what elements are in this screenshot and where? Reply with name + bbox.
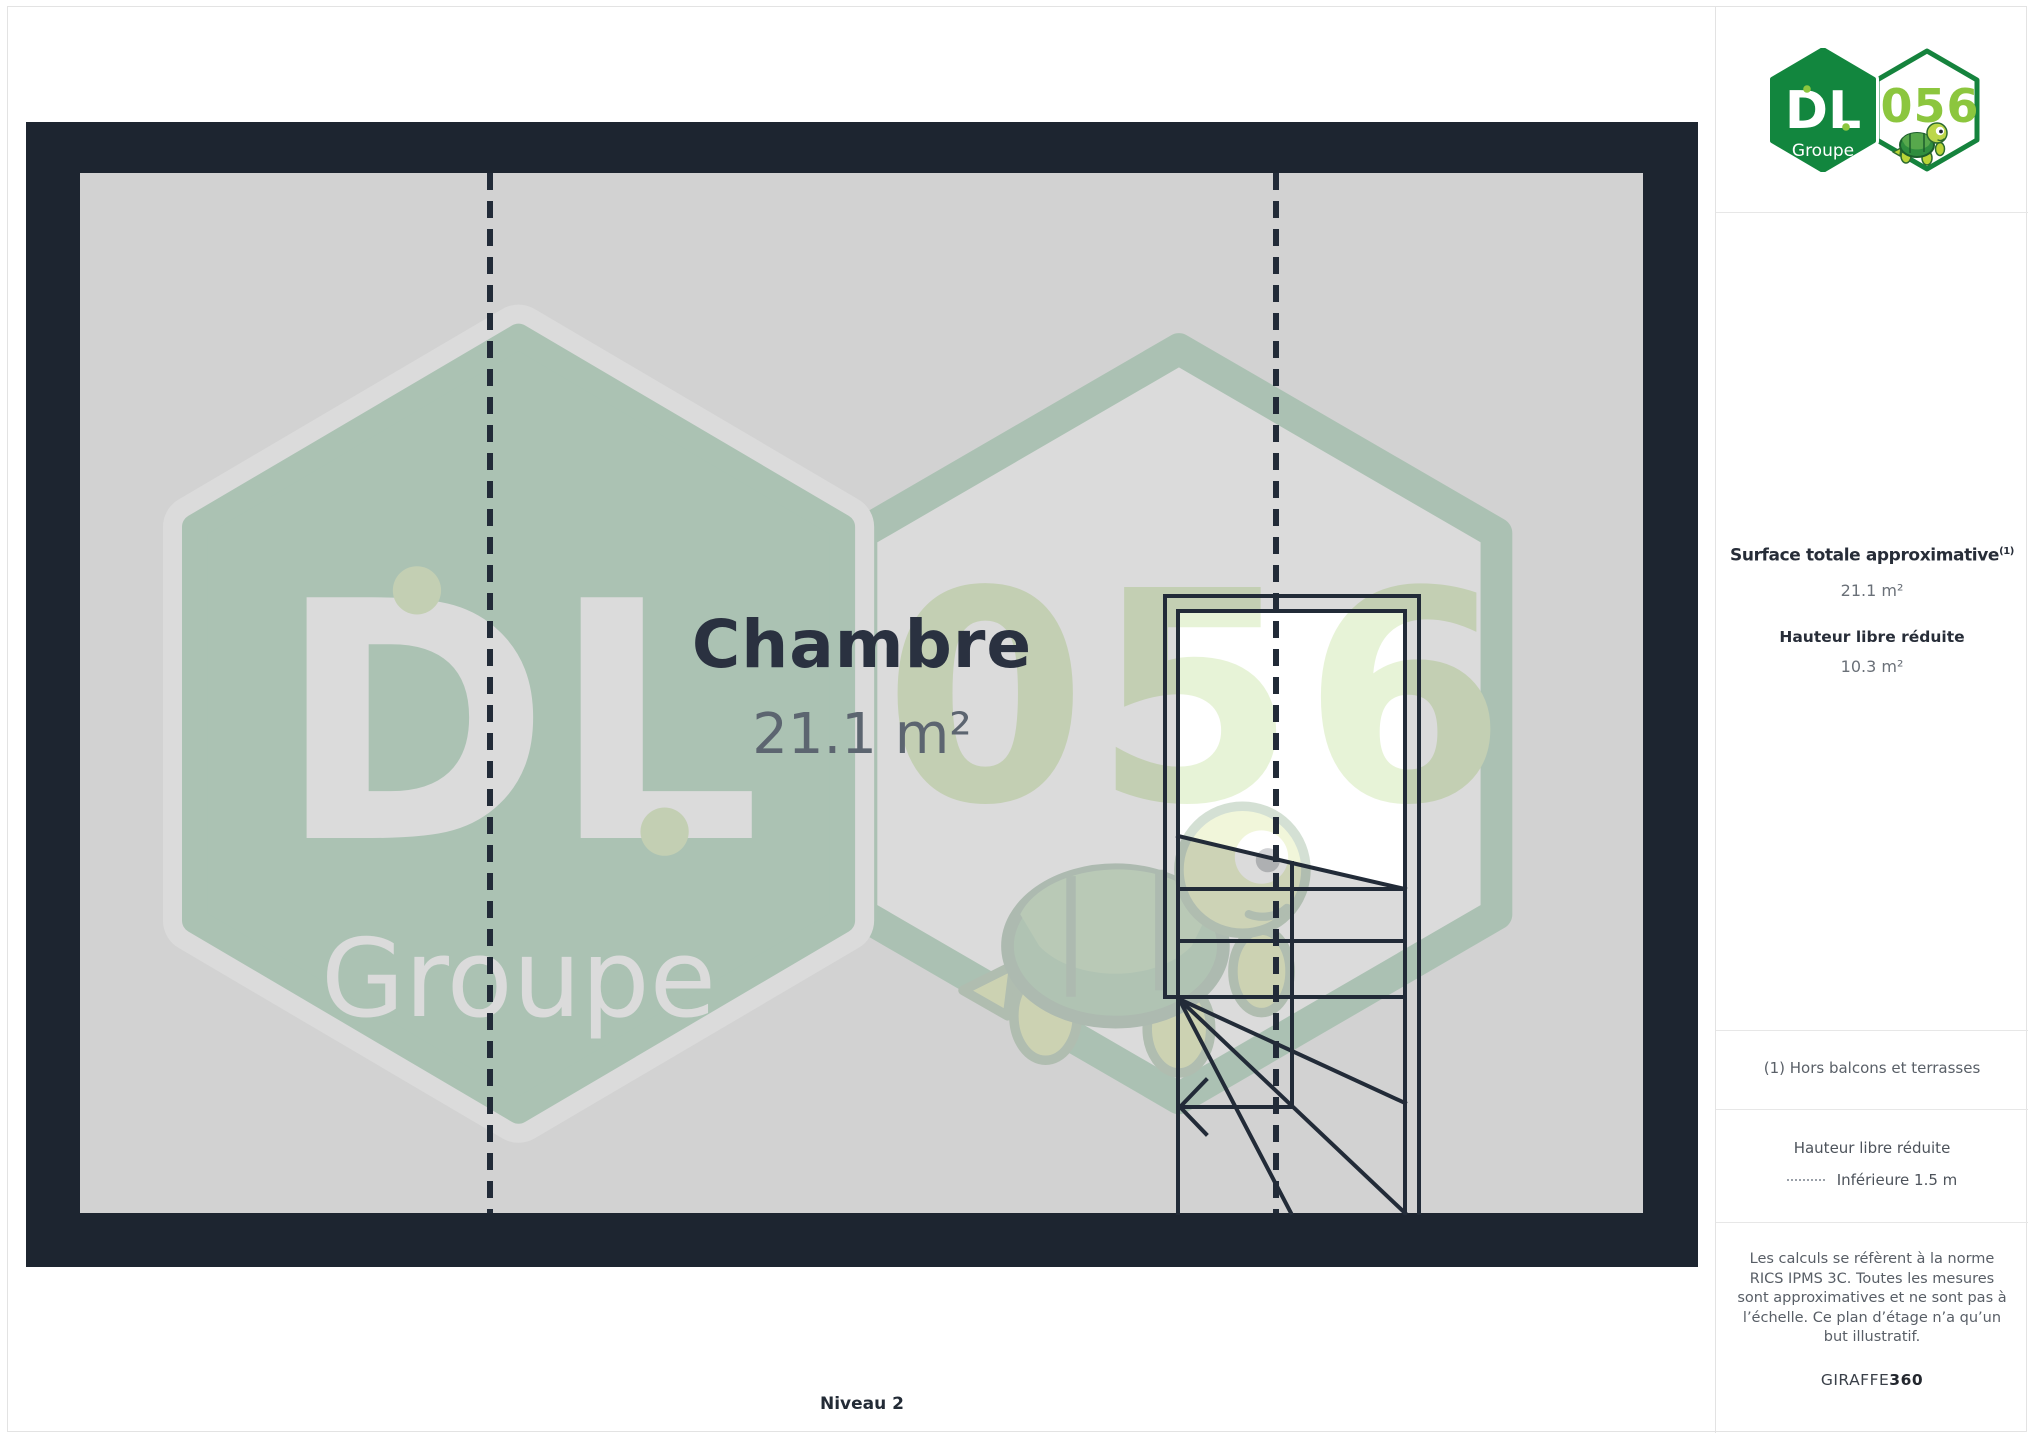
legend-item-label: Inférieure 1.5 m [1837,1168,1958,1192]
brand-suffix: 360 [1889,1371,1923,1389]
brand-name: GIRAFFE [1821,1371,1889,1389]
level-label: Niveau 2 [562,1394,1162,1414]
surface-title-text: Surface totale approximative [1730,546,1999,566]
surface-title-footnote-marker: (1) [1999,546,2014,557]
footnote-section: (1) Hors balcons et terrasses [1716,1056,2028,1080]
legend-row: Inférieure 1.5 m [1716,1168,2028,1192]
reduced-height-title: Hauteur libre réduite [1716,626,2028,648]
legend-title: Hauteur libre réduite [1716,1136,2028,1160]
sidebar-rule-4 [1716,1222,2028,1223]
company-logo [1770,48,1980,172]
legend-section: Hauteur libre réduite Inférieure 1.5 m [1716,1136,2028,1192]
surface-title: Surface totale approximative(1) [1716,540,2028,568]
room-area: 21.1 m² [562,702,1162,767]
footnote-text: (1) Hors balcons et terrasses [1716,1056,2028,1080]
giraffe360-brand: GIRAFFE360 [1716,1368,2028,1392]
sidebar-divider [1715,6,1716,1433]
surface-summary: Surface totale approximative(1) 21.1 m² … [1716,540,2028,678]
disclaimer-text: Les calculs se réfèrent à la norme RICS … [1736,1250,2008,1348]
surface-value: 21.1 m² [1716,580,2028,602]
dashed-line-legend-icon [1787,1179,1825,1181]
sidebar-rule-2 [1716,1030,2028,1031]
sidebar-rule-1 [1716,212,2028,213]
sidebar-rule-3 [1716,1109,2028,1110]
reduced-height-value: 10.3 m² [1716,656,2028,678]
room-label: Chambre [562,606,1162,683]
